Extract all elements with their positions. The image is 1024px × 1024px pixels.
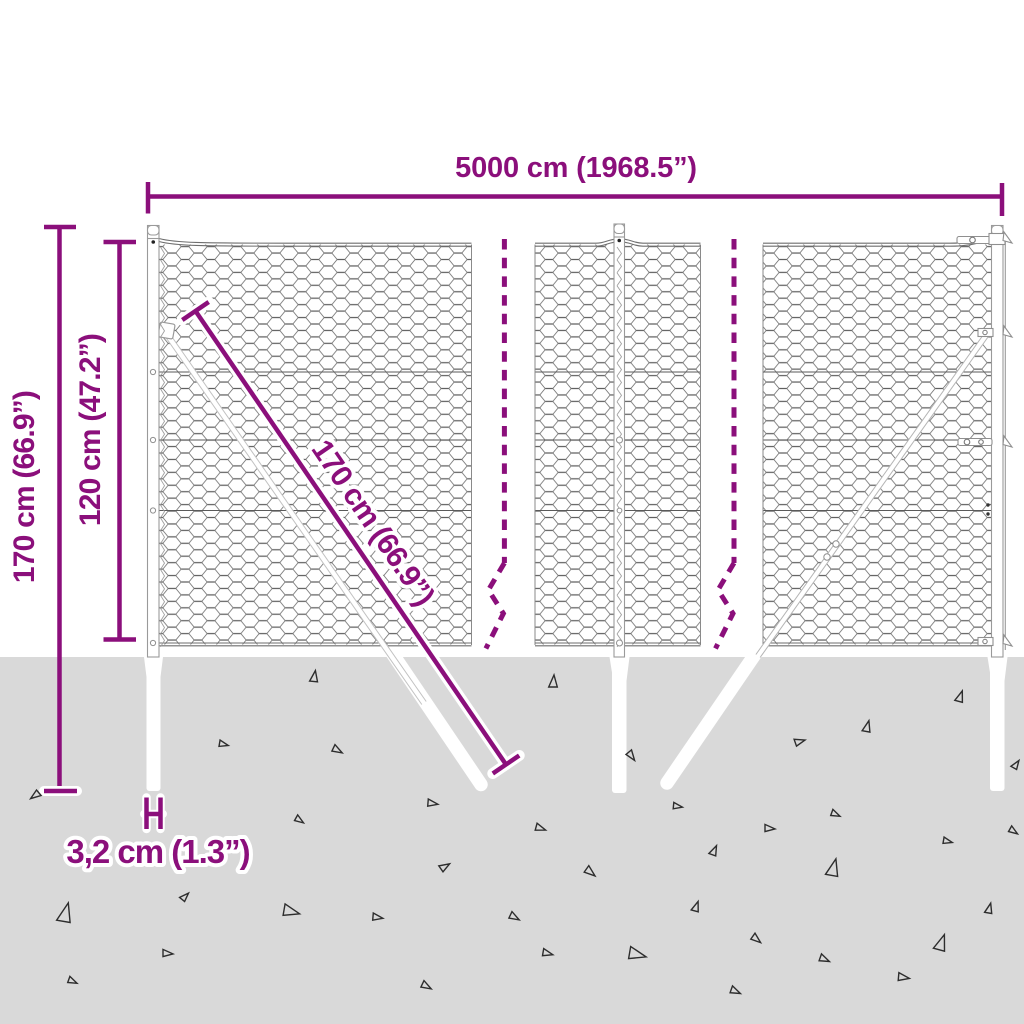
svg-text:3,2 cm (1.3”): 3,2 cm (1.3”): [66, 833, 249, 870]
svg-text:5000 cm (1968.5”): 5000 cm (1968.5”): [455, 152, 697, 184]
svg-text:170 cm (66.9”): 170 cm (66.9”): [8, 391, 41, 583]
svg-text:120 cm (47.2”): 120 cm (47.2”): [74, 334, 107, 526]
